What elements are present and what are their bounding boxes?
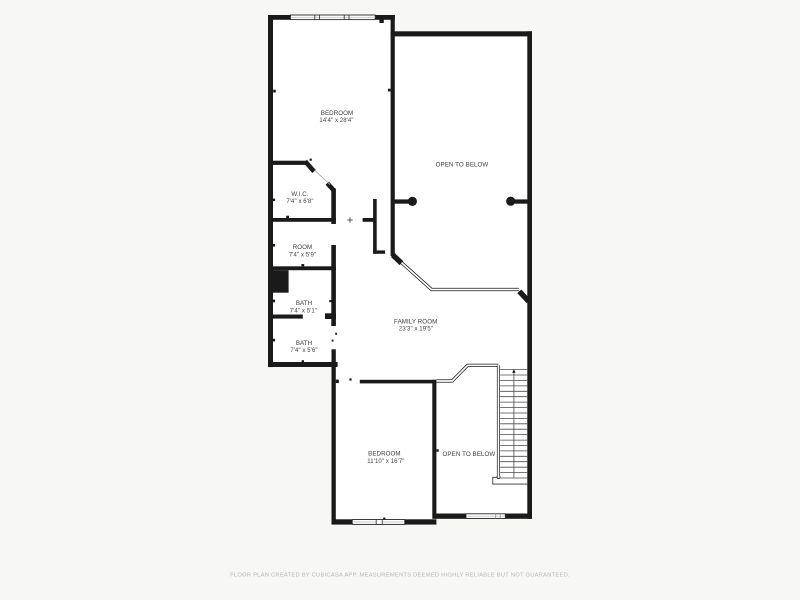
- svg-text:7'4" x 5'1": 7'4" x 5'1": [290, 309, 317, 315]
- svg-text:FLOOR PLAN CREATED BY CUBICASA: FLOOR PLAN CREATED BY CUBICASA APP. MEAS…: [230, 572, 570, 578]
- svg-text:BEDROOM: BEDROOM: [368, 450, 401, 457]
- svg-text:23'3" x 19'5": 23'3" x 19'5": [399, 327, 433, 333]
- svg-text:FAMILY ROOM: FAMILY ROOM: [394, 318, 437, 325]
- svg-text:14'4" x 28'4": 14'4" x 28'4": [319, 118, 353, 124]
- svg-text:11'10" x 16'7": 11'10" x 16'7": [367, 459, 404, 465]
- svg-text:ROOM: ROOM: [293, 244, 313, 251]
- svg-text:OPEN TO BELOW: OPEN TO BELOW: [436, 162, 489, 169]
- svg-text:7'4" x 6'8": 7'4" x 6'8": [286, 199, 313, 205]
- svg-text:W.I.C.: W.I.C.: [291, 191, 309, 198]
- svg-text:BATH: BATH: [296, 300, 312, 307]
- svg-text:OPEN TO BELOW: OPEN TO BELOW: [443, 451, 496, 458]
- svg-text:BEDROOM: BEDROOM: [321, 110, 354, 117]
- svg-text:7'4" x 5'9": 7'4" x 5'9": [289, 252, 316, 258]
- svg-text:7'4" x 5'6": 7'4" x 5'6": [290, 348, 317, 354]
- svg-text:BATH: BATH: [296, 340, 312, 347]
